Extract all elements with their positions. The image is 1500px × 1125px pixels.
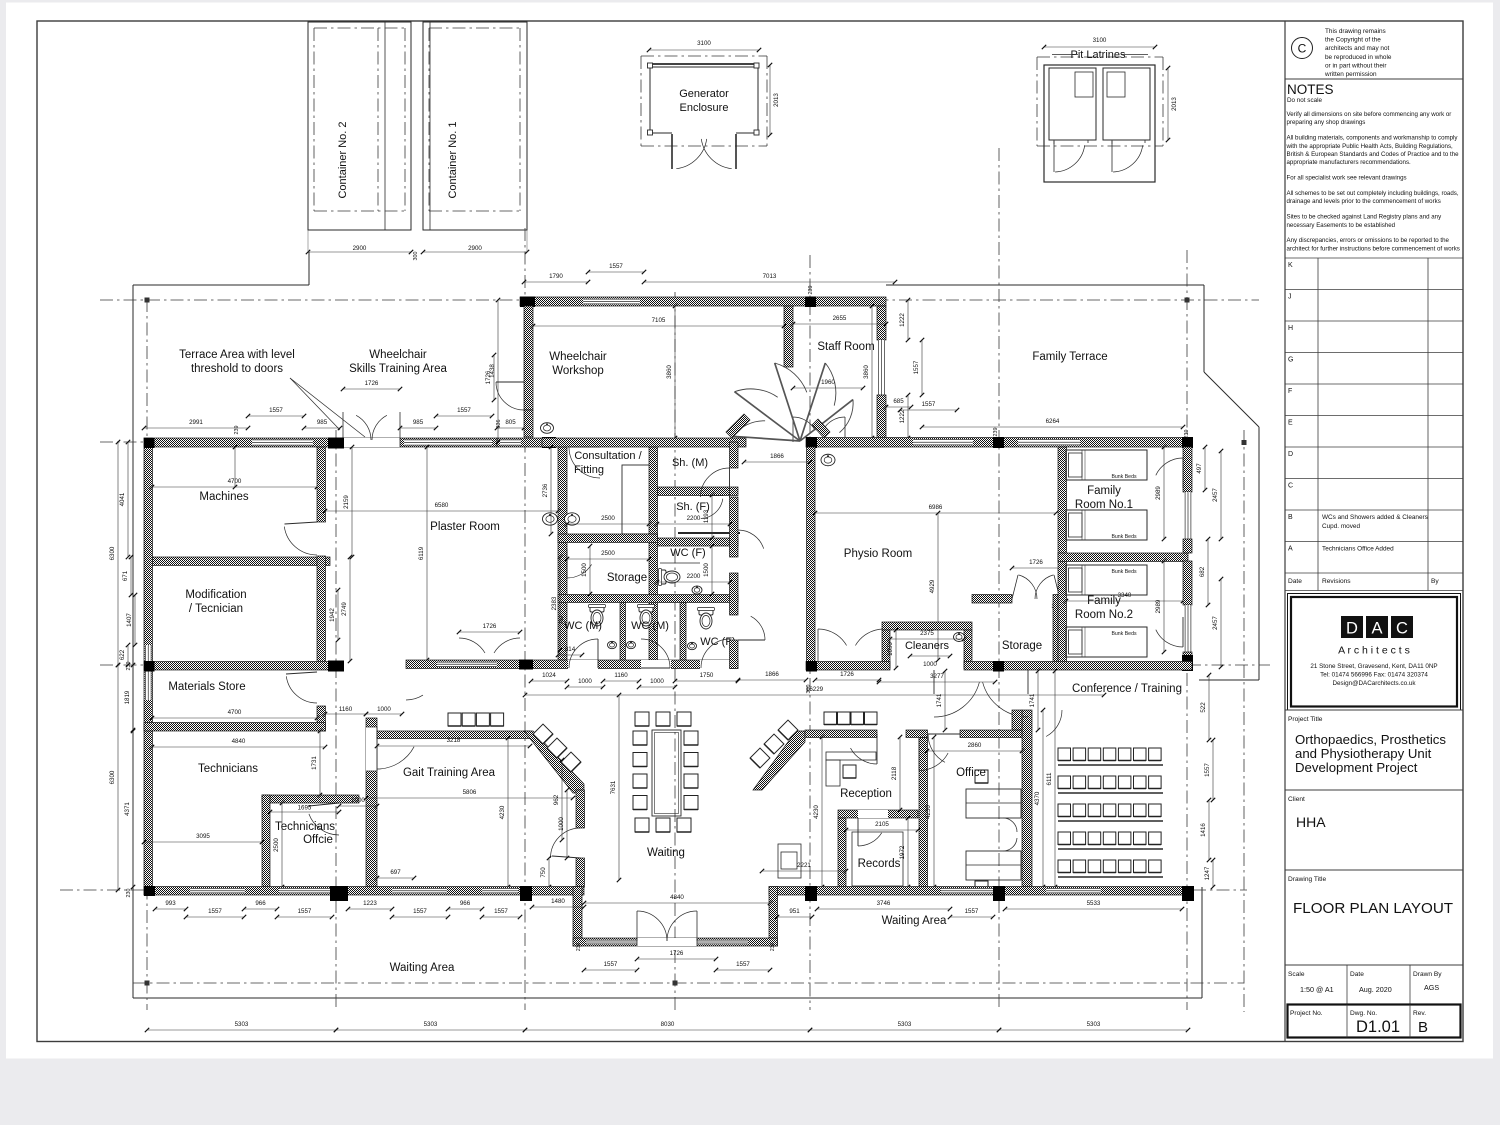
svg-text:1000: 1000 xyxy=(377,706,391,713)
svg-text:230: 230 xyxy=(126,662,132,671)
svg-text:A: A xyxy=(1288,546,1293,553)
svg-text:3100: 3100 xyxy=(1093,37,1107,44)
svg-text:2457: 2457 xyxy=(1212,488,1219,502)
svg-text:1726: 1726 xyxy=(670,950,684,957)
svg-text:4840: 4840 xyxy=(232,738,246,745)
svg-text:Design@DACarchitects.co.uk: Design@DACarchitects.co.uk xyxy=(1332,680,1416,687)
svg-text:Plaster Room: Plaster Room xyxy=(430,521,500,533)
svg-text:21 Stone Street, Gravesend, Ke: 21 Stone Street, Gravesend, Kent, DA11 0… xyxy=(1310,663,1437,670)
svg-text:Wheelchair: Wheelchair xyxy=(369,349,427,361)
svg-text:1000: 1000 xyxy=(578,678,592,685)
svg-text:or in part without their: or in part without their xyxy=(1325,62,1387,69)
svg-text:Modification: Modification xyxy=(185,589,246,601)
svg-text:Client: Client xyxy=(1288,796,1305,803)
svg-text:Storage: Storage xyxy=(1002,640,1042,652)
svg-text:Pit Latrines: Pit Latrines xyxy=(1070,49,1126,61)
svg-text:5303: 5303 xyxy=(1087,1021,1101,1028)
svg-text:Scale: Scale xyxy=(1288,971,1305,978)
svg-text:All schemes to be set out comp: All schemes to be set out completely inc… xyxy=(1287,190,1459,197)
svg-text:Staff Room: Staff Room xyxy=(817,341,874,353)
svg-text:2013: 2013 xyxy=(1171,97,1178,111)
svg-text:Storage: Storage xyxy=(607,572,647,584)
svg-text:Project Title: Project Title xyxy=(1288,716,1323,723)
svg-text:814: 814 xyxy=(565,646,576,653)
svg-text:1557: 1557 xyxy=(208,908,222,915)
svg-text:1726: 1726 xyxy=(485,370,492,384)
svg-text:Wheelchair: Wheelchair xyxy=(549,351,607,363)
svg-text:K: K xyxy=(1288,262,1293,269)
svg-text:985: 985 xyxy=(413,419,424,426)
svg-text:J: J xyxy=(1288,294,1292,301)
svg-text:AGS: AGS xyxy=(1424,983,1439,992)
svg-text:1223: 1223 xyxy=(363,900,377,907)
svg-text:A: A xyxy=(1371,620,1382,638)
svg-text:D1.01: D1.01 xyxy=(1356,1018,1400,1036)
svg-text:be reproduced in whole: be reproduced in whole xyxy=(1325,54,1392,61)
svg-text:Drawing Title: Drawing Title xyxy=(1288,876,1326,883)
svg-text:5303: 5303 xyxy=(235,1021,249,1028)
svg-text:966: 966 xyxy=(255,900,266,907)
svg-text:Do not scale: Do not scale xyxy=(1287,97,1322,104)
svg-text:1000: 1000 xyxy=(558,817,565,831)
svg-text:Waiting: Waiting xyxy=(647,847,685,859)
svg-text:WC (M): WC (M) xyxy=(631,620,669,632)
svg-text:Office: Office xyxy=(956,767,986,779)
svg-text:2500: 2500 xyxy=(601,515,615,522)
svg-text:1557: 1557 xyxy=(269,407,283,414)
svg-text:2118: 2118 xyxy=(891,766,898,780)
svg-text:1960: 1960 xyxy=(821,379,835,386)
svg-text:architect for further instruct: architect for further instructions befor… xyxy=(1287,245,1460,252)
svg-text:3100: 3100 xyxy=(697,40,711,47)
svg-text:1972: 1972 xyxy=(899,845,906,859)
svg-text:7631: 7631 xyxy=(610,780,617,794)
svg-text:805: 805 xyxy=(505,419,516,426)
svg-text:Workshop: Workshop xyxy=(552,365,604,377)
svg-text:985: 985 xyxy=(317,419,328,426)
svg-text:4929: 4929 xyxy=(929,579,936,593)
svg-text:239: 239 xyxy=(808,286,814,295)
svg-text:Waiting Area: Waiting Area xyxy=(390,962,455,974)
svg-text:4230: 4230 xyxy=(925,805,932,819)
svg-text:1407: 1407 xyxy=(126,613,133,627)
svg-text:239: 239 xyxy=(993,428,999,437)
svg-text:2105: 2105 xyxy=(875,821,889,828)
svg-text:threshold to doors: threshold to doors xyxy=(191,363,283,375)
svg-text:C: C xyxy=(1396,620,1408,638)
svg-text:Fitting: Fitting xyxy=(574,464,604,476)
svg-text:Consultation /: Consultation / xyxy=(574,450,642,462)
svg-text:497: 497 xyxy=(1196,463,1203,474)
svg-text:1193: 1193 xyxy=(703,509,710,523)
svg-text:1557: 1557 xyxy=(604,961,618,968)
svg-text:Any discrepancies, errors or o: Any discrepancies, errors or omissions t… xyxy=(1287,237,1450,244)
svg-text:750: 750 xyxy=(540,867,547,878)
svg-text:For all specialist work see re: For all specialist work see relevant dra… xyxy=(1287,175,1407,182)
svg-text:Date: Date xyxy=(1288,578,1302,585)
svg-text:Reception: Reception xyxy=(840,788,892,800)
svg-text:HHA: HHA xyxy=(1296,814,1326,830)
svg-text:Technicians: Technicians xyxy=(198,763,258,775)
svg-text:1480: 1480 xyxy=(551,898,565,905)
svg-text:Container No. 2: Container No. 2 xyxy=(337,121,349,198)
svg-text:1:50 @ A1: 1:50 @ A1 xyxy=(1300,985,1334,994)
svg-text:1557: 1557 xyxy=(913,360,920,374)
svg-text:British & European Standards a: British & European Standards and Codes o… xyxy=(1287,151,1460,158)
svg-text:Waiting Area: Waiting Area xyxy=(882,915,947,927)
svg-text:2860: 2860 xyxy=(968,742,982,749)
svg-text:2200: 2200 xyxy=(687,573,701,580)
svg-text:6264: 6264 xyxy=(1046,418,1060,425)
svg-text:G: G xyxy=(1288,357,1293,364)
svg-text:necessary Easements to be esta: necessary Easements to be established xyxy=(1287,222,1396,229)
svg-text:2989: 2989 xyxy=(1155,599,1162,613)
svg-text:C: C xyxy=(1298,42,1307,56)
svg-text:Tel: 01474 566996 Fax: 014: Tel: 01474 566996 Fax: 01474 320374 xyxy=(1320,672,1428,679)
svg-text:4370: 4370 xyxy=(1034,791,1041,805)
svg-text:Gait Training Area: Gait Training Area xyxy=(403,767,496,779)
svg-text:This drawing remains: This drawing remains xyxy=(1325,28,1386,35)
svg-text:1819: 1819 xyxy=(124,690,131,704)
svg-text:Bunk Beds: Bunk Beds xyxy=(1111,474,1136,480)
svg-text:1750: 1750 xyxy=(700,672,714,679)
svg-text:Project No.: Project No. xyxy=(1290,1010,1323,1017)
svg-text:Generator: Generator xyxy=(679,88,729,100)
svg-text:1726: 1726 xyxy=(840,671,854,678)
svg-text:2991: 2991 xyxy=(189,419,203,426)
svg-text:160: 160 xyxy=(559,616,565,625)
svg-text:/ Tecnician: / Tecnician xyxy=(189,603,243,615)
svg-text:Physio Room: Physio Room xyxy=(844,548,912,560)
svg-text:1726: 1726 xyxy=(1029,559,1043,566)
svg-text:NOTES: NOTES xyxy=(1287,82,1334,97)
svg-text:Sites to be checked against La: Sites to be checked against Land Registr… xyxy=(1287,214,1443,221)
svg-text:3860: 3860 xyxy=(863,365,870,379)
svg-text:written permission: written permission xyxy=(1324,71,1377,78)
svg-text:1222: 1222 xyxy=(899,409,906,423)
svg-text:1416: 1416 xyxy=(1200,823,1207,837)
svg-text:Cupd. moved: Cupd. moved xyxy=(1322,523,1360,530)
svg-text:Container No. 1: Container No. 1 xyxy=(447,121,459,198)
svg-text:All building materials, compon: All building materials, components and w… xyxy=(1287,135,1459,142)
svg-text:Rev.: Rev. xyxy=(1413,1010,1426,1017)
svg-text:239: 239 xyxy=(1184,430,1190,439)
svg-text:Aug. 2020: Aug. 2020 xyxy=(1359,985,1392,994)
svg-text:5533: 5533 xyxy=(1087,900,1101,907)
svg-text:1866: 1866 xyxy=(765,671,779,678)
svg-text:F: F xyxy=(1288,388,1292,395)
svg-text:671: 671 xyxy=(122,570,129,581)
svg-text:1160: 1160 xyxy=(339,706,353,713)
svg-text:966: 966 xyxy=(460,900,471,907)
svg-text:1000: 1000 xyxy=(650,678,664,685)
svg-text:Records: Records xyxy=(858,858,901,870)
svg-text:2655: 2655 xyxy=(833,315,847,322)
svg-text:3746: 3746 xyxy=(877,900,891,907)
svg-text:1741: 1741 xyxy=(936,693,943,707)
svg-text:1557: 1557 xyxy=(922,401,936,408)
svg-text:E: E xyxy=(1288,420,1293,427)
svg-text:6580: 6580 xyxy=(435,502,449,509)
svg-text:Enclosure: Enclosure xyxy=(680,102,729,114)
svg-text:Technicians Office Added: Technicians Office Added xyxy=(1322,546,1394,553)
svg-text:3277: 3277 xyxy=(930,673,944,680)
svg-text:300: 300 xyxy=(806,685,812,694)
svg-text:WCs and Showers added & Cleane: WCs and Showers added & Cleaners xyxy=(1322,514,1428,521)
svg-text:236: 236 xyxy=(576,943,582,952)
svg-text:3218: 3218 xyxy=(447,737,461,744)
svg-text:2900: 2900 xyxy=(353,245,367,252)
svg-text:Date: Date xyxy=(1350,971,1364,978)
svg-text:Offcie: Offcie xyxy=(303,834,333,846)
svg-text:2500: 2500 xyxy=(273,838,280,852)
svg-text:6119: 6119 xyxy=(418,546,425,560)
svg-text:2500: 2500 xyxy=(601,550,615,557)
svg-text:Orthopaedics, Prosthetics: Orthopaedics, Prosthetics xyxy=(1295,732,1446,747)
svg-text:3095: 3095 xyxy=(196,833,210,840)
svg-text:D: D xyxy=(1288,451,1293,458)
svg-text:685: 685 xyxy=(893,398,904,405)
svg-text:Family: Family xyxy=(1087,485,1121,497)
svg-text:preparing any shop drawings: preparing any shop drawings xyxy=(1287,119,1366,126)
svg-text:2749: 2749 xyxy=(341,602,348,616)
svg-text:4230: 4230 xyxy=(499,805,506,819)
svg-text:4041: 4041 xyxy=(119,492,126,506)
svg-text:4371: 4371 xyxy=(124,802,131,816)
svg-text:522: 522 xyxy=(1200,702,1207,713)
svg-text:1695: 1695 xyxy=(298,805,312,812)
svg-text:1741: 1741 xyxy=(1029,693,1036,707)
svg-text:Family Terrace: Family Terrace xyxy=(1032,351,1107,363)
svg-text:Bunk Beds: Bunk Beds xyxy=(1111,569,1136,575)
svg-text:7105: 7105 xyxy=(652,317,666,324)
svg-text:2375: 2375 xyxy=(920,630,934,637)
svg-text:Terrace Area with level: Terrace Area with level xyxy=(179,349,295,361)
svg-text:1726: 1726 xyxy=(365,380,379,387)
svg-text:2989: 2989 xyxy=(1155,486,1162,500)
svg-text:1557: 1557 xyxy=(494,908,508,915)
svg-text:6300: 6300 xyxy=(109,546,116,560)
svg-text:C: C xyxy=(1288,483,1293,490)
svg-text:Drawn By: Drawn By xyxy=(1413,971,1442,978)
svg-text:230: 230 xyxy=(126,889,132,898)
svg-text:Bunk Beds: Bunk Beds xyxy=(1111,631,1136,637)
svg-text:1726: 1726 xyxy=(483,623,497,630)
svg-text:A r c h i t e c t s: A r c h i t e c t s xyxy=(1338,645,1410,657)
svg-text:697: 697 xyxy=(390,869,401,876)
svg-text:Machines: Machines xyxy=(199,491,248,503)
svg-text:1557: 1557 xyxy=(965,908,979,915)
svg-text:WC (M): WC (M) xyxy=(564,620,602,632)
svg-text:6111: 6111 xyxy=(1046,772,1053,785)
svg-text:1500: 1500 xyxy=(581,563,588,577)
svg-text:B: B xyxy=(1418,1019,1428,1036)
svg-text:993: 993 xyxy=(165,900,176,907)
svg-text:1557: 1557 xyxy=(736,961,750,968)
svg-text:1557: 1557 xyxy=(1204,763,1211,777)
svg-text:H: H xyxy=(1288,325,1293,332)
svg-text:6986: 6986 xyxy=(929,504,943,511)
svg-text:4700: 4700 xyxy=(228,709,242,716)
svg-text:Bunk Beds: Bunk Beds xyxy=(1111,534,1136,540)
svg-text:622: 622 xyxy=(119,649,126,660)
svg-text:5303: 5303 xyxy=(424,1021,438,1028)
svg-text:B: B xyxy=(1288,514,1293,521)
svg-text:1731: 1731 xyxy=(311,756,318,770)
svg-text:drainage and levels prior to t: drainage and levels prior to the commenc… xyxy=(1287,198,1441,205)
svg-text:2383: 2383 xyxy=(551,596,558,610)
svg-text:951: 951 xyxy=(789,908,800,915)
svg-text:7013: 7013 xyxy=(763,273,777,280)
svg-text:1866: 1866 xyxy=(770,453,784,460)
svg-text:FLOOR PLAN LAYOUT: FLOOR PLAN LAYOUT xyxy=(1293,900,1453,917)
svg-text:Conference / Training: Conference / Training xyxy=(1072,683,1182,695)
svg-text:1790: 1790 xyxy=(549,273,563,280)
svg-text:Skills Training Area: Skills Training Area xyxy=(349,363,447,375)
svg-text:1160: 1160 xyxy=(614,672,628,679)
svg-text:6300: 6300 xyxy=(109,770,116,784)
svg-text:1557: 1557 xyxy=(609,263,623,270)
svg-text:1557: 1557 xyxy=(457,407,471,414)
svg-text:1050: 1050 xyxy=(887,642,894,656)
svg-text:239: 239 xyxy=(234,426,240,435)
svg-text:5806: 5806 xyxy=(463,789,477,796)
svg-text:Verify all dimensions on site: Verify all dimensions on site before com… xyxy=(1287,111,1452,118)
svg-text:WC (F): WC (F) xyxy=(670,547,705,559)
svg-text:2013: 2013 xyxy=(773,93,780,107)
svg-text:with the appropriate Public He: with the appropriate Public Health Acts,… xyxy=(1286,143,1454,150)
svg-text:1557: 1557 xyxy=(413,908,427,915)
svg-text:1942: 1942 xyxy=(329,608,336,622)
svg-text:2736: 2736 xyxy=(542,483,549,497)
svg-text:1247: 1247 xyxy=(1204,866,1211,880)
svg-text:D: D xyxy=(1346,620,1358,638)
svg-text:Dwg. No.: Dwg. No. xyxy=(1350,1010,1377,1017)
svg-text:Cleaners: Cleaners xyxy=(905,640,950,652)
svg-text:the Copyright of the: the Copyright of the xyxy=(1325,37,1381,44)
svg-text:and Physiotherapy Unit: and Physiotherapy Unit xyxy=(1295,746,1432,761)
svg-text:2900: 2900 xyxy=(468,245,482,252)
svg-text:2159: 2159 xyxy=(343,495,350,509)
svg-text:1000: 1000 xyxy=(351,797,365,804)
svg-text:5303: 5303 xyxy=(898,1021,912,1028)
svg-text:682: 682 xyxy=(1199,566,1206,577)
svg-text:2457: 2457 xyxy=(1212,616,1219,630)
svg-text:4230: 4230 xyxy=(813,805,820,819)
svg-text:2200: 2200 xyxy=(687,515,701,522)
svg-text:Room No.2: Room No.2 xyxy=(1075,609,1133,621)
svg-text:architects and may not: architects and may not xyxy=(1325,45,1390,52)
svg-text:2221: 2221 xyxy=(797,862,811,869)
svg-text:1557: 1557 xyxy=(298,908,312,915)
svg-text:8030: 8030 xyxy=(661,1021,675,1028)
svg-text:962: 962 xyxy=(553,794,560,805)
svg-text:appropriate manufacturers reco: appropriate manufacturers recommendation… xyxy=(1287,159,1412,166)
svg-text:1000: 1000 xyxy=(923,661,937,668)
svg-text:1024: 1024 xyxy=(542,672,556,679)
svg-text:4840: 4840 xyxy=(670,894,684,901)
svg-text:1222: 1222 xyxy=(899,313,906,327)
svg-text:Development Project: Development Project xyxy=(1295,760,1418,775)
svg-text:836: 836 xyxy=(496,420,502,429)
svg-text:Revisions: Revisions xyxy=(1322,578,1351,585)
svg-text:Room No.1: Room No.1 xyxy=(1075,499,1133,511)
svg-text:3860: 3860 xyxy=(666,365,673,379)
svg-text:236: 236 xyxy=(770,943,776,952)
svg-text:1500: 1500 xyxy=(703,563,710,577)
svg-text:Materials Store: Materials Store xyxy=(168,681,245,693)
svg-text:By: By xyxy=(1431,578,1439,585)
svg-text:300: 300 xyxy=(413,252,419,261)
svg-text:Sh. (M): Sh. (M) xyxy=(672,457,708,469)
svg-text:Technicians: Technicians xyxy=(275,821,335,833)
